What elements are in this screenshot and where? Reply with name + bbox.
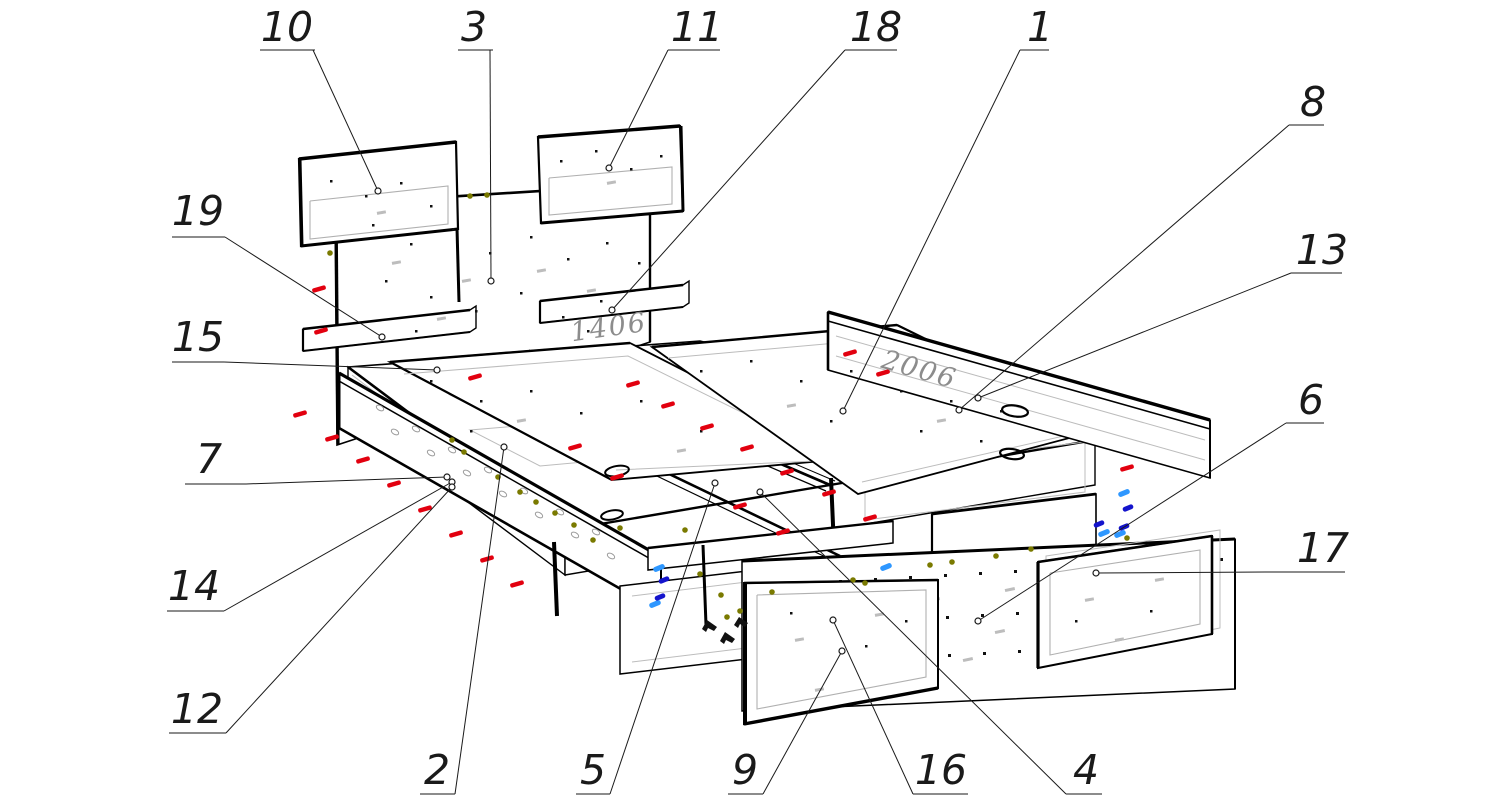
part-number: 16 xyxy=(915,746,967,794)
leader-endpoint xyxy=(501,444,507,450)
leader-endpoint xyxy=(609,307,615,313)
fastener-blue-dark-mark xyxy=(1122,504,1134,513)
leader-endpoint xyxy=(956,407,962,413)
part-number: 14 xyxy=(168,562,220,610)
leader-endpoint xyxy=(606,165,612,171)
fastener-red-mark xyxy=(480,555,495,563)
fastener-red-mark xyxy=(1120,464,1135,472)
fastener-olive-mark xyxy=(993,553,999,559)
fastener-olive-mark xyxy=(571,522,577,528)
fastener-olive-mark xyxy=(769,589,775,595)
leader-endpoint xyxy=(840,408,846,414)
callout-14: 14 xyxy=(167,479,455,611)
headboard-top-panel-right xyxy=(538,126,683,223)
leader-endpoint xyxy=(375,188,381,194)
fastener-red-mark xyxy=(312,285,327,293)
fastener-blue-light-mark xyxy=(1117,488,1130,497)
part-number: 15 xyxy=(172,313,224,361)
leader-endpoint xyxy=(839,648,845,654)
fastener-olive-mark xyxy=(517,489,523,495)
part-number: 17 xyxy=(1297,524,1349,572)
fastener-olive-mark xyxy=(1124,535,1130,541)
leader-endpoint xyxy=(488,278,494,284)
part-number: 11 xyxy=(671,3,723,51)
fastener-red-mark xyxy=(510,580,525,588)
fastener-olive-mark xyxy=(484,192,490,198)
part-number: 18 xyxy=(850,3,902,51)
part-number: 1 xyxy=(1027,3,1053,51)
fastener-olive-mark xyxy=(927,562,933,568)
fastener-olive-mark xyxy=(1028,546,1034,552)
part-number: 4 xyxy=(1073,746,1099,794)
leader-endpoint xyxy=(434,367,440,373)
part-number: 8 xyxy=(1300,78,1326,126)
fastener-olive-mark xyxy=(949,559,955,565)
part-number: 3 xyxy=(461,3,487,51)
fastener-olive-mark xyxy=(862,580,868,586)
part-number: 19 xyxy=(172,187,224,235)
fastener-olive-mark xyxy=(718,592,724,598)
leader-endpoint xyxy=(757,489,763,495)
exploded-view-drawing: 14062006 10311181813617191571412259164 xyxy=(0,0,1510,804)
part-number: 12 xyxy=(171,685,223,733)
fastener-olive-mark xyxy=(449,437,455,443)
leader-endpoint xyxy=(379,334,385,340)
fastener-olive-mark xyxy=(461,449,467,455)
leader-endpoint xyxy=(444,474,450,480)
drawing-canvas: 14062006 10311181813617191571412259164 xyxy=(0,0,1510,804)
leader-endpoint xyxy=(712,480,718,486)
fastener-olive-mark xyxy=(617,525,623,531)
part-number: 6 xyxy=(1298,376,1324,424)
fastener-olive-mark xyxy=(467,193,473,199)
leader-endpoint xyxy=(830,617,836,623)
leader-endpoint xyxy=(449,484,455,490)
fastener-red-mark xyxy=(449,530,464,538)
fastener-olive-mark xyxy=(590,537,596,543)
part-number: 7 xyxy=(196,435,222,483)
part-number: 9 xyxy=(732,746,758,794)
fastener-red-mark xyxy=(387,480,402,488)
fastener-blue-light-mark xyxy=(1097,528,1110,537)
fastener-olive-mark xyxy=(724,614,730,620)
part-number: 5 xyxy=(580,746,606,794)
fastener-olive-mark xyxy=(697,571,703,577)
part-number: 13 xyxy=(1296,226,1348,274)
leader-endpoint xyxy=(975,618,981,624)
fastener-olive-mark xyxy=(327,250,333,256)
part-number: 10 xyxy=(261,3,313,51)
fastener-red-mark xyxy=(293,410,308,418)
leader-endpoint xyxy=(975,395,981,401)
fastener-red-mark xyxy=(356,456,371,464)
part-number: 2 xyxy=(424,746,450,794)
fastener-olive-mark xyxy=(682,527,688,533)
fastener-olive-mark xyxy=(533,499,539,505)
fastener-olive-mark xyxy=(552,510,558,516)
leader-endpoint xyxy=(1093,570,1099,576)
fastener-red-mark xyxy=(418,505,433,513)
fastener-olive-mark xyxy=(737,608,743,614)
